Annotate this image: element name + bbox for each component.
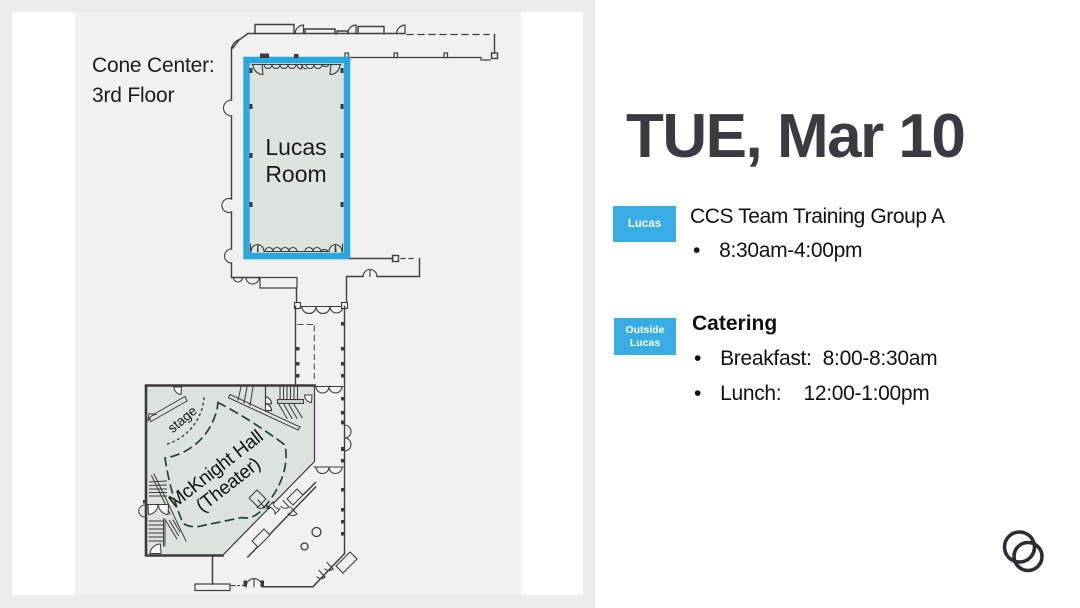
svg-text:Lucas: Lucas (265, 134, 326, 160)
svg-text:Room: Room (265, 161, 326, 187)
